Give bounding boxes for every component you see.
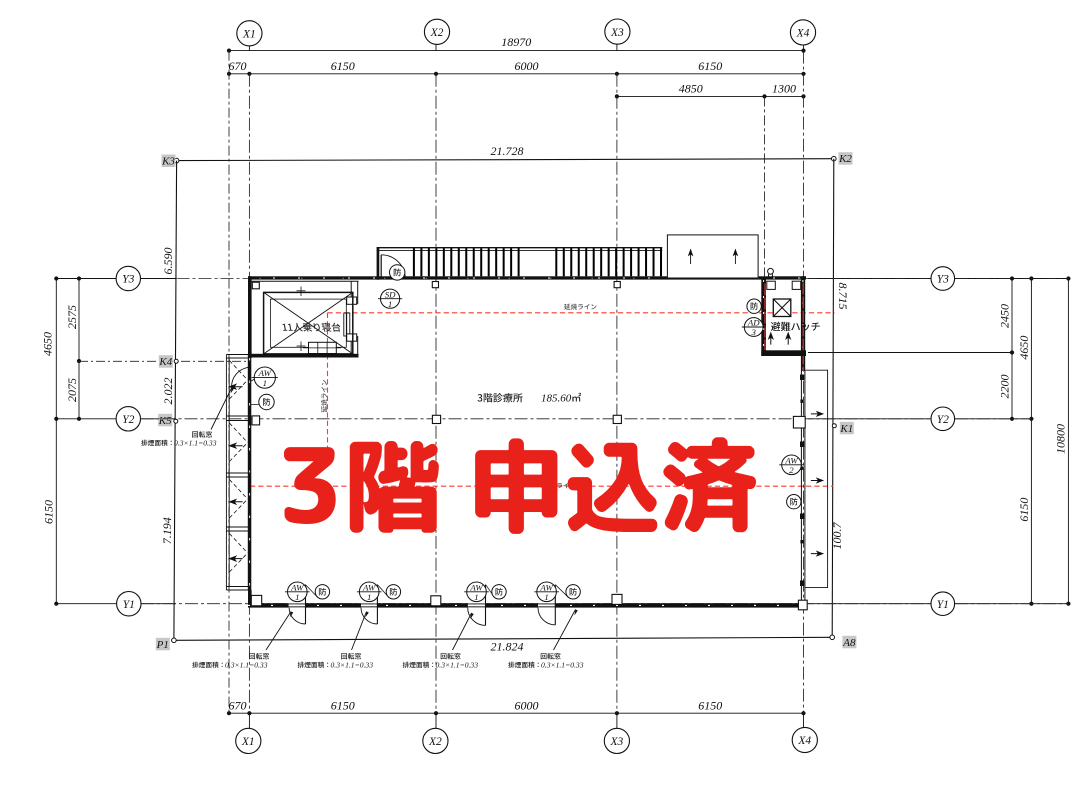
svg-text:10800: 10800 bbox=[1054, 424, 1068, 454]
svg-text:0.3×1.1=0.33: 0.3×1.1=0.33 bbox=[436, 660, 479, 669]
svg-text:P1: P1 bbox=[156, 639, 169, 651]
svg-text:Y1: Y1 bbox=[123, 599, 135, 611]
svg-text:1: 1 bbox=[544, 592, 548, 602]
svg-text:K5: K5 bbox=[158, 415, 172, 427]
svg-text:2200: 2200 bbox=[998, 375, 1012, 399]
svg-text:X4: X4 bbox=[797, 735, 811, 747]
svg-text:AW: AW bbox=[258, 368, 272, 378]
svg-text:21.824: 21.824 bbox=[491, 640, 524, 654]
svg-text:0.3×1.1=0.33: 0.3×1.1=0.33 bbox=[174, 438, 217, 447]
svg-text:6000: 6000 bbox=[515, 59, 539, 73]
svg-text:6000: 6000 bbox=[515, 698, 539, 712]
svg-text:0.3×1.1=0.33: 0.3×1.1=0.33 bbox=[331, 660, 374, 669]
svg-text:AD: AD bbox=[747, 318, 760, 328]
svg-text:AW: AW bbox=[539, 582, 553, 592]
svg-text:0.3×1.1=0.33: 0.3×1.1=0.33 bbox=[541, 660, 584, 669]
svg-text:X1: X1 bbox=[241, 736, 255, 748]
svg-text:Y2: Y2 bbox=[122, 414, 134, 426]
svg-text:670: 670 bbox=[229, 698, 247, 712]
svg-text:1: 1 bbox=[263, 378, 267, 388]
svg-text:Y1: Y1 bbox=[937, 599, 949, 611]
svg-text:Y2: Y2 bbox=[937, 414, 949, 426]
svg-text:3: 3 bbox=[750, 327, 756, 337]
svg-text:SD: SD bbox=[385, 289, 396, 299]
svg-text:6150: 6150 bbox=[331, 698, 355, 712]
svg-text:6150: 6150 bbox=[331, 59, 355, 73]
svg-text:4650: 4650 bbox=[41, 332, 55, 356]
svg-text:4850: 4850 bbox=[679, 82, 703, 96]
svg-text:K3: K3 bbox=[161, 156, 175, 168]
svg-text:100.7: 100.7 bbox=[830, 522, 844, 550]
svg-text:7.194: 7.194 bbox=[160, 517, 174, 544]
svg-text:2575: 2575 bbox=[65, 305, 79, 329]
svg-text:X4: X4 bbox=[796, 28, 810, 40]
svg-text:6150: 6150 bbox=[1017, 498, 1031, 522]
svg-text:18970: 18970 bbox=[501, 35, 531, 49]
svg-text:A8: A8 bbox=[842, 637, 856, 649]
svg-text:X3: X3 bbox=[610, 27, 624, 39]
svg-text:6150: 6150 bbox=[42, 500, 56, 524]
svg-text:Y3: Y3 bbox=[937, 274, 949, 286]
svg-text:21.728: 21.728 bbox=[491, 144, 524, 158]
svg-text:K2: K2 bbox=[838, 153, 852, 165]
svg-text:2075: 2075 bbox=[65, 378, 79, 402]
svg-text:K4: K4 bbox=[158, 356, 172, 368]
svg-text:185.60: 185.60 bbox=[541, 393, 572, 405]
svg-text:6.590: 6.590 bbox=[161, 248, 175, 275]
svg-text:6150: 6150 bbox=[698, 698, 722, 712]
svg-text:4650: 4650 bbox=[1017, 336, 1031, 360]
svg-text:X2: X2 bbox=[430, 27, 444, 39]
svg-text:X3: X3 bbox=[610, 736, 624, 748]
svg-text:AW: AW bbox=[469, 582, 483, 592]
svg-text:670: 670 bbox=[229, 59, 247, 73]
svg-text:X1: X1 bbox=[242, 29, 256, 41]
svg-text:AW: AW bbox=[362, 582, 376, 592]
svg-text:2450: 2450 bbox=[998, 304, 1012, 328]
svg-text:AW: AW bbox=[784, 455, 798, 465]
svg-text:Y3: Y3 bbox=[122, 274, 134, 286]
svg-text:0.3×1.1=0.33: 0.3×1.1=0.33 bbox=[225, 660, 268, 669]
svg-text:1: 1 bbox=[388, 299, 392, 309]
svg-text:1: 1 bbox=[474, 592, 478, 602]
svg-text:8.715: 8.715 bbox=[836, 283, 850, 310]
svg-text:2: 2 bbox=[789, 465, 794, 475]
svg-text:1: 1 bbox=[367, 592, 371, 602]
svg-text:AW: AW bbox=[290, 582, 304, 592]
svg-text:2.022: 2.022 bbox=[161, 378, 175, 405]
svg-text:K1: K1 bbox=[839, 423, 853, 435]
svg-text:X2: X2 bbox=[428, 736, 442, 748]
svg-text:1: 1 bbox=[295, 592, 299, 602]
svg-text:1300: 1300 bbox=[772, 82, 796, 96]
svg-text:6150: 6150 bbox=[698, 59, 722, 73]
